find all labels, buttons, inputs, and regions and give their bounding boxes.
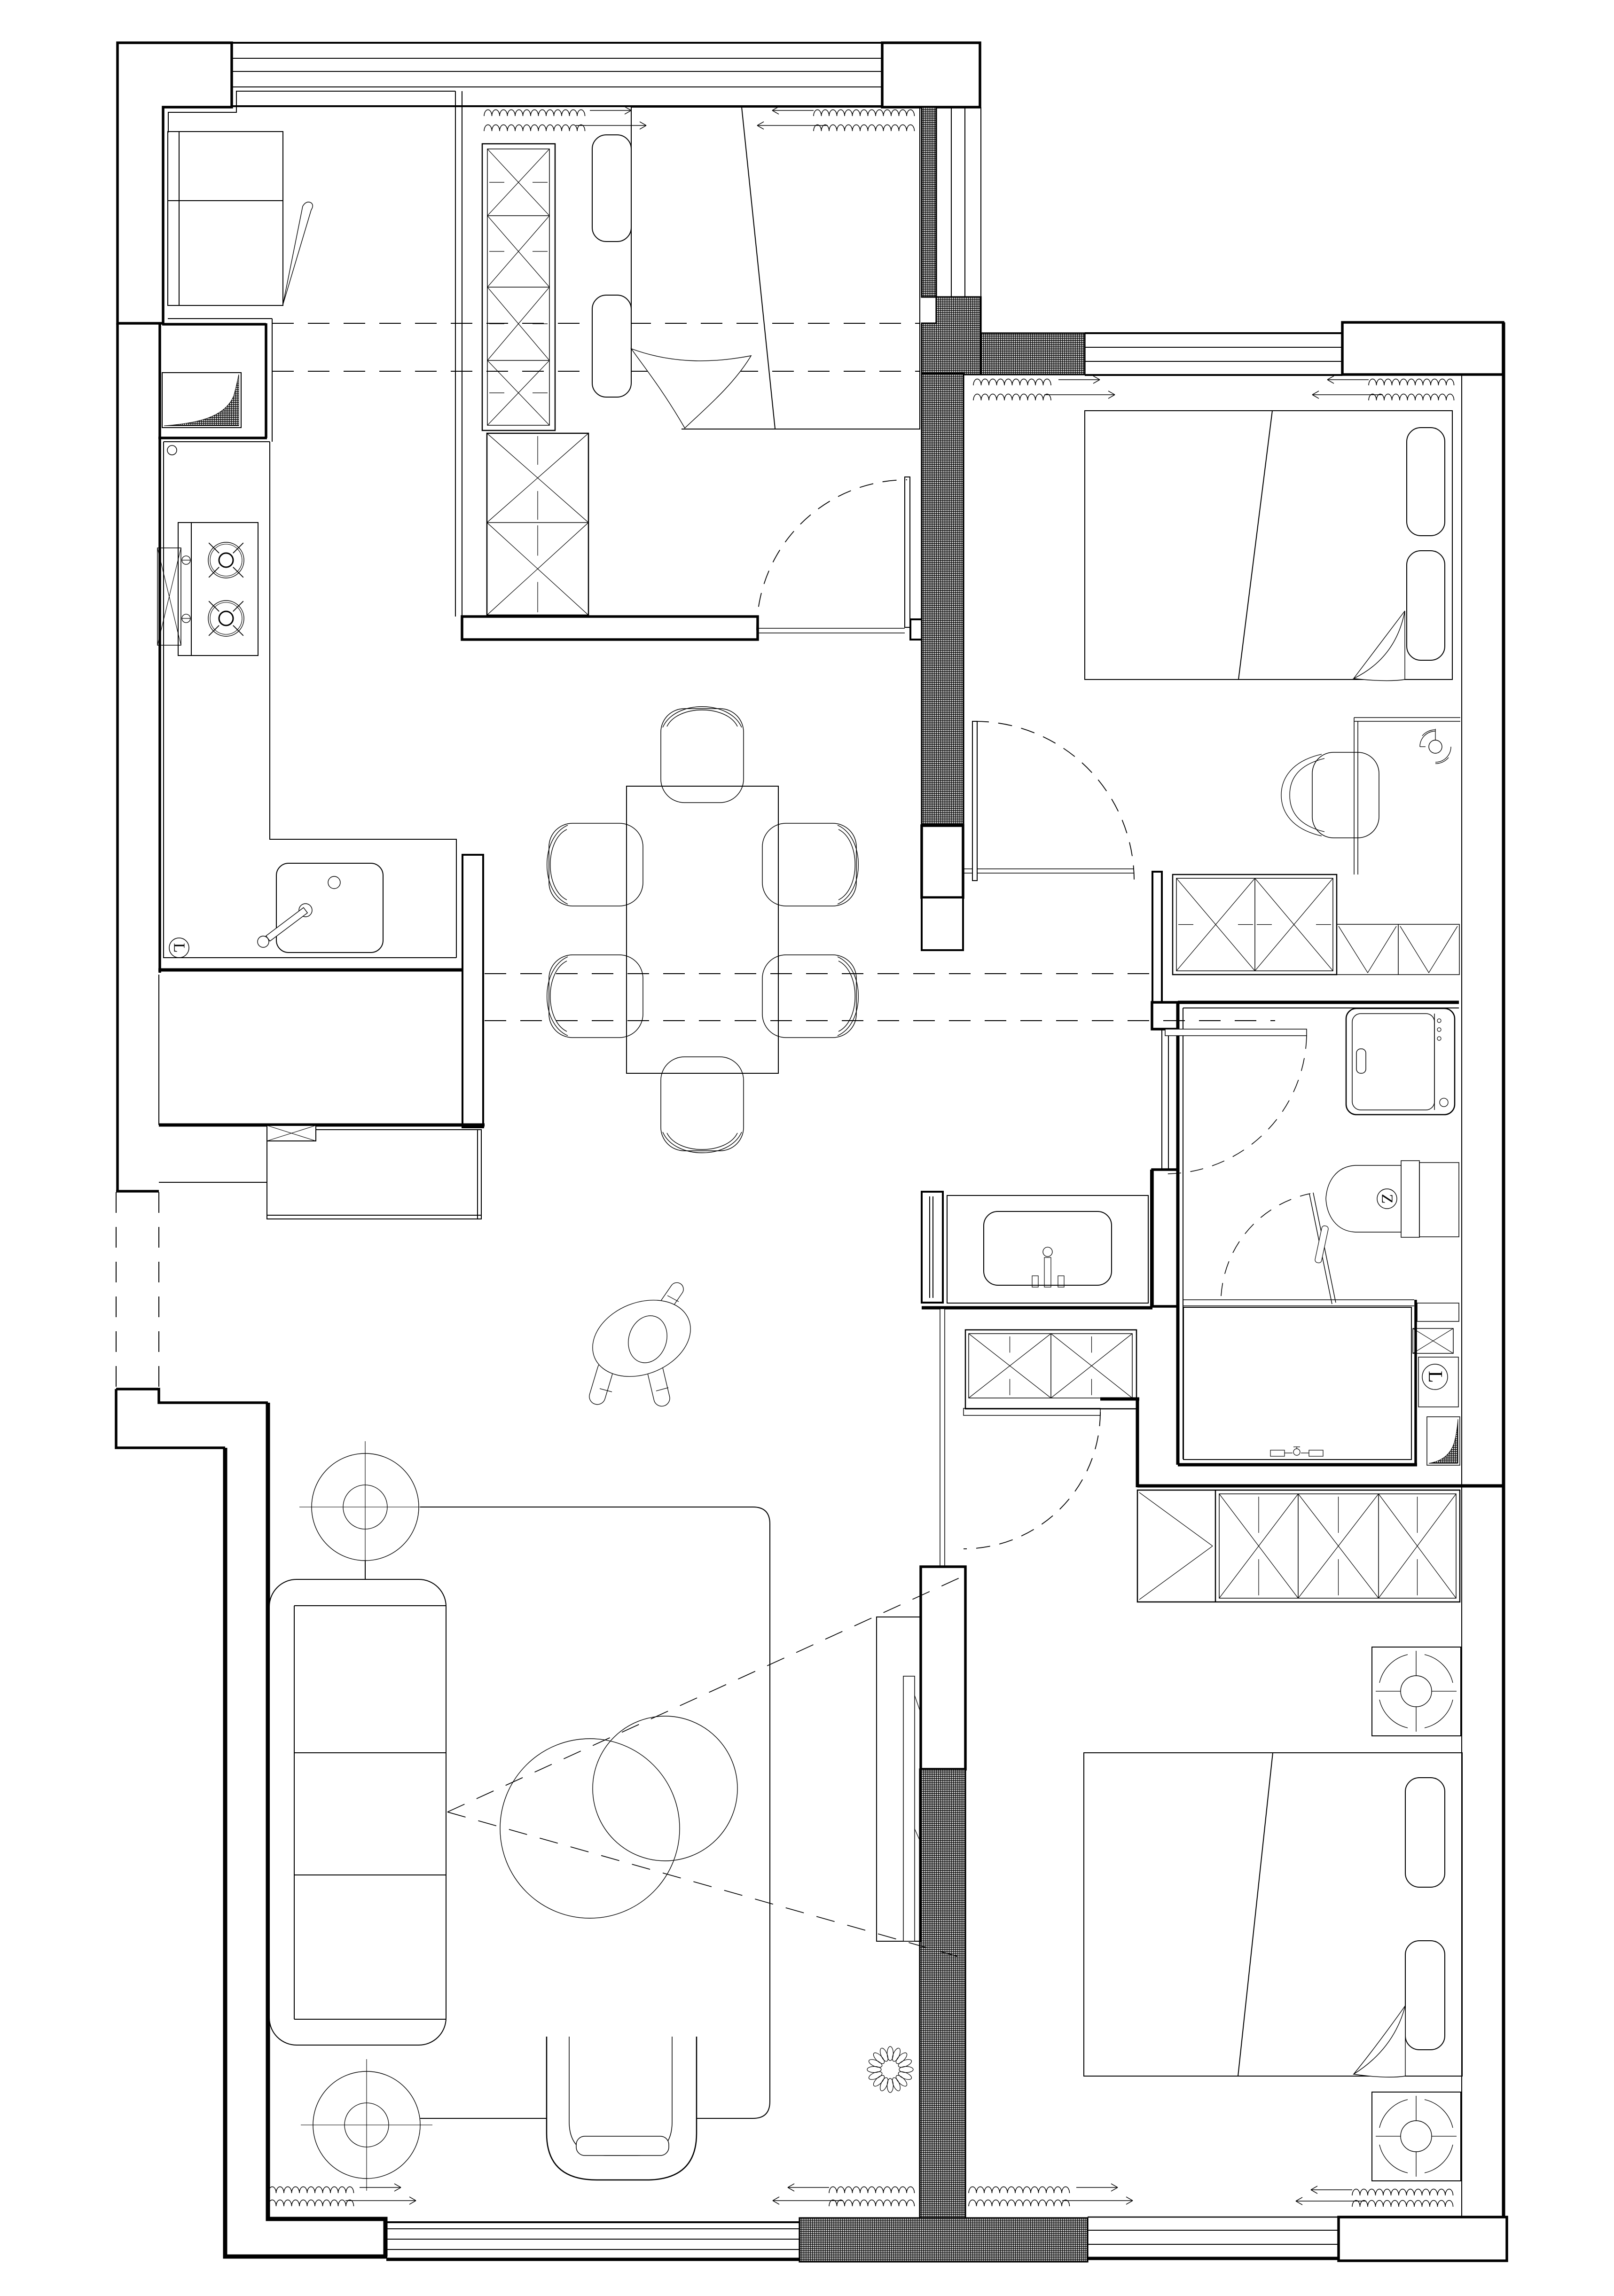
svg-text:Z: Z	[1379, 1194, 1396, 1204]
svg-text:L: L	[1424, 1371, 1446, 1383]
svg-text:L: L	[171, 943, 188, 953]
